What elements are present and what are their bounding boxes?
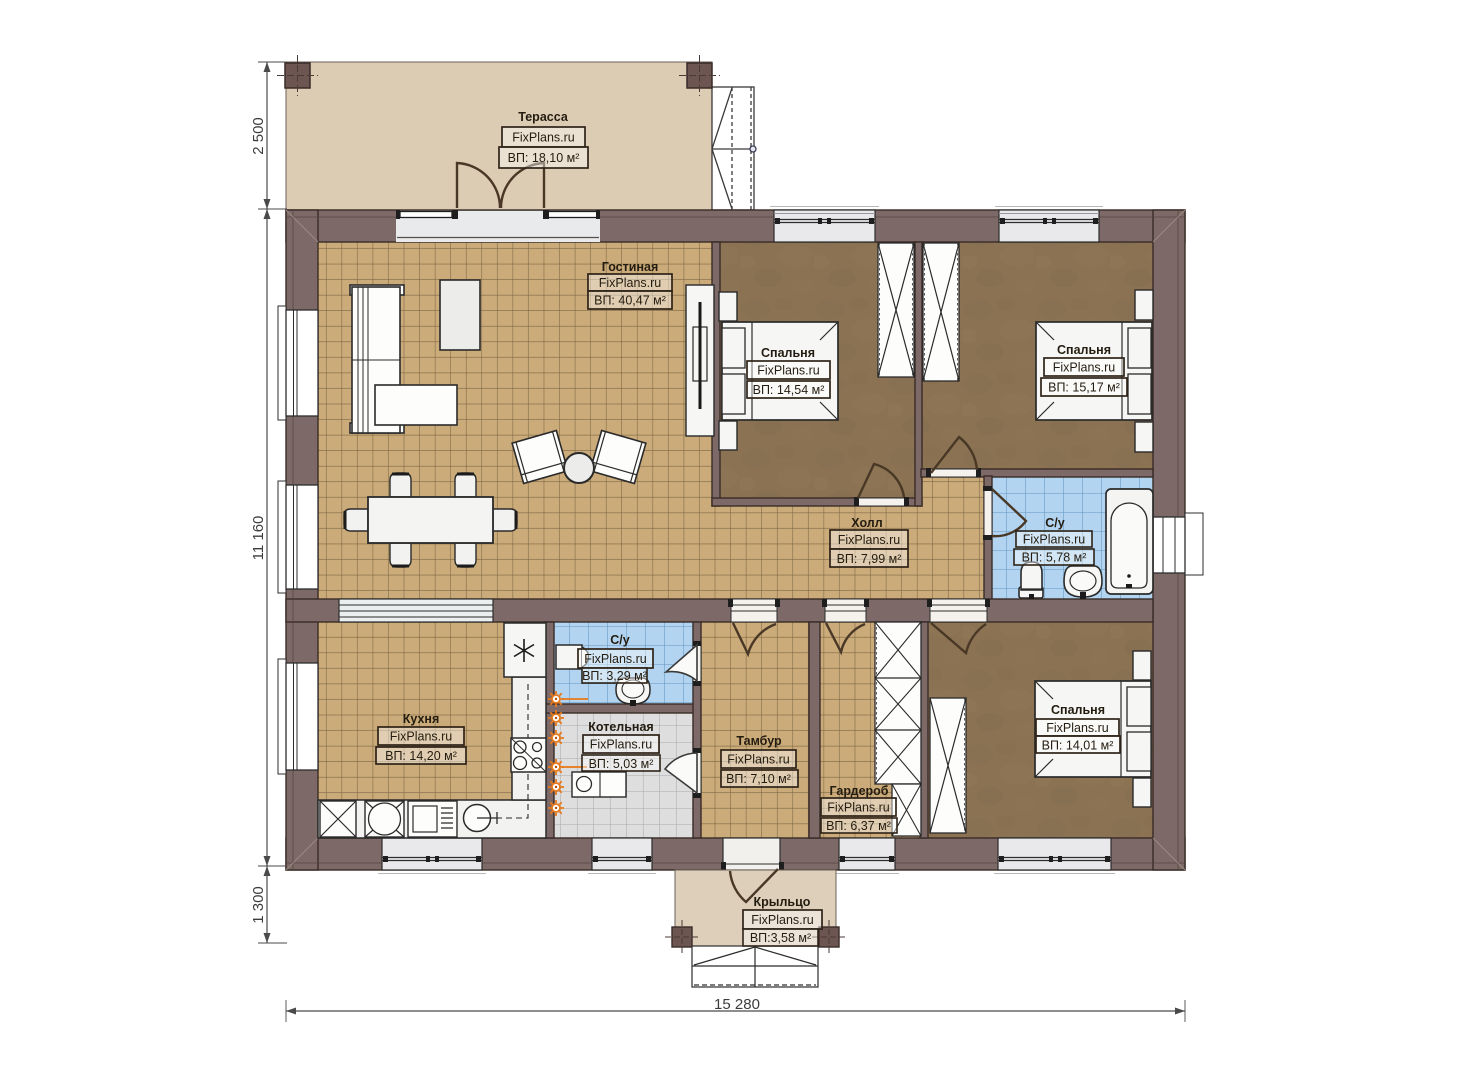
svg-text:С/у: С/у [610,633,630,647]
svg-text:Спальня: Спальня [1051,703,1105,717]
svg-text:FixPlans.ru: FixPlans.ru [838,533,901,547]
svg-text:FixPlans.ru: FixPlans.ru [590,738,653,752]
svg-text:15 280: 15 280 [714,996,760,1013]
svg-text:ВП: 5,78 м²: ВП: 5,78 м² [1022,551,1087,565]
svg-text:Котельная: Котельная [588,720,653,734]
svg-text:FixPlans.ru: FixPlans.ru [827,801,890,815]
svg-text:FixPlans.ru: FixPlans.ru [727,753,790,767]
svg-text:FixPlans.ru: FixPlans.ru [757,364,820,378]
svg-text:Холл: Холл [851,516,882,530]
svg-text:FixPlans.ru: FixPlans.ru [599,276,662,290]
svg-text:Гардероб: Гардероб [829,784,888,798]
svg-text:FixPlans.ru: FixPlans.ru [1046,721,1109,735]
svg-text:ВП: 6,37 м²: ВП: 6,37 м² [826,819,891,833]
svg-text:Гостиная: Гостиная [602,260,659,274]
svg-text:ВП: 15,17 м²: ВП: 15,17 м² [1048,381,1120,395]
svg-text:ВП: 40,47 м²: ВП: 40,47 м² [594,294,666,308]
svg-text:С/у: С/у [1045,516,1065,530]
svg-text:ВП: 5,03 м²: ВП: 5,03 м² [589,757,654,771]
svg-text:ВП: 18,10 м²: ВП: 18,10 м² [508,151,580,165]
svg-text:FixPlans.ru: FixPlans.ru [1023,533,1086,547]
svg-text:ВП: 3,29 м²: ВП: 3,29 м² [582,669,647,683]
svg-text:Тамбур: Тамбур [736,734,782,748]
svg-text:1 300: 1 300 [250,886,267,924]
svg-text:FixPlans.ru: FixPlans.ru [512,131,575,145]
svg-text:FixPlans.ru: FixPlans.ru [584,652,647,666]
svg-text:ВП: 14,20 м²: ВП: 14,20 м² [385,749,457,763]
svg-text:Кухня: Кухня [403,712,440,726]
svg-text:2 500: 2 500 [250,117,267,155]
svg-text:Терасса: Терасса [518,110,569,124]
svg-text:Спальня: Спальня [1057,343,1111,357]
svg-text:ВП: 14,54 м²: ВП: 14,54 м² [753,383,825,397]
svg-text:ВП: 14,01 м²: ВП: 14,01 м² [1042,739,1114,753]
svg-text:Крыльцо: Крыльцо [754,895,811,909]
svg-text:ВП: 7,10 м²: ВП: 7,10 м² [726,772,791,786]
svg-text:FixPlans.ru: FixPlans.ru [751,913,814,927]
svg-text:11 160: 11 160 [250,516,267,561]
svg-text:ВП: 7,99 м²: ВП: 7,99 м² [837,552,902,566]
svg-text:Спальня: Спальня [761,346,815,360]
svg-text:FixPlans.ru: FixPlans.ru [1053,361,1116,375]
svg-text:ВП:3,58 м²: ВП:3,58 м² [750,931,811,945]
svg-text:FixPlans.ru: FixPlans.ru [390,730,453,744]
